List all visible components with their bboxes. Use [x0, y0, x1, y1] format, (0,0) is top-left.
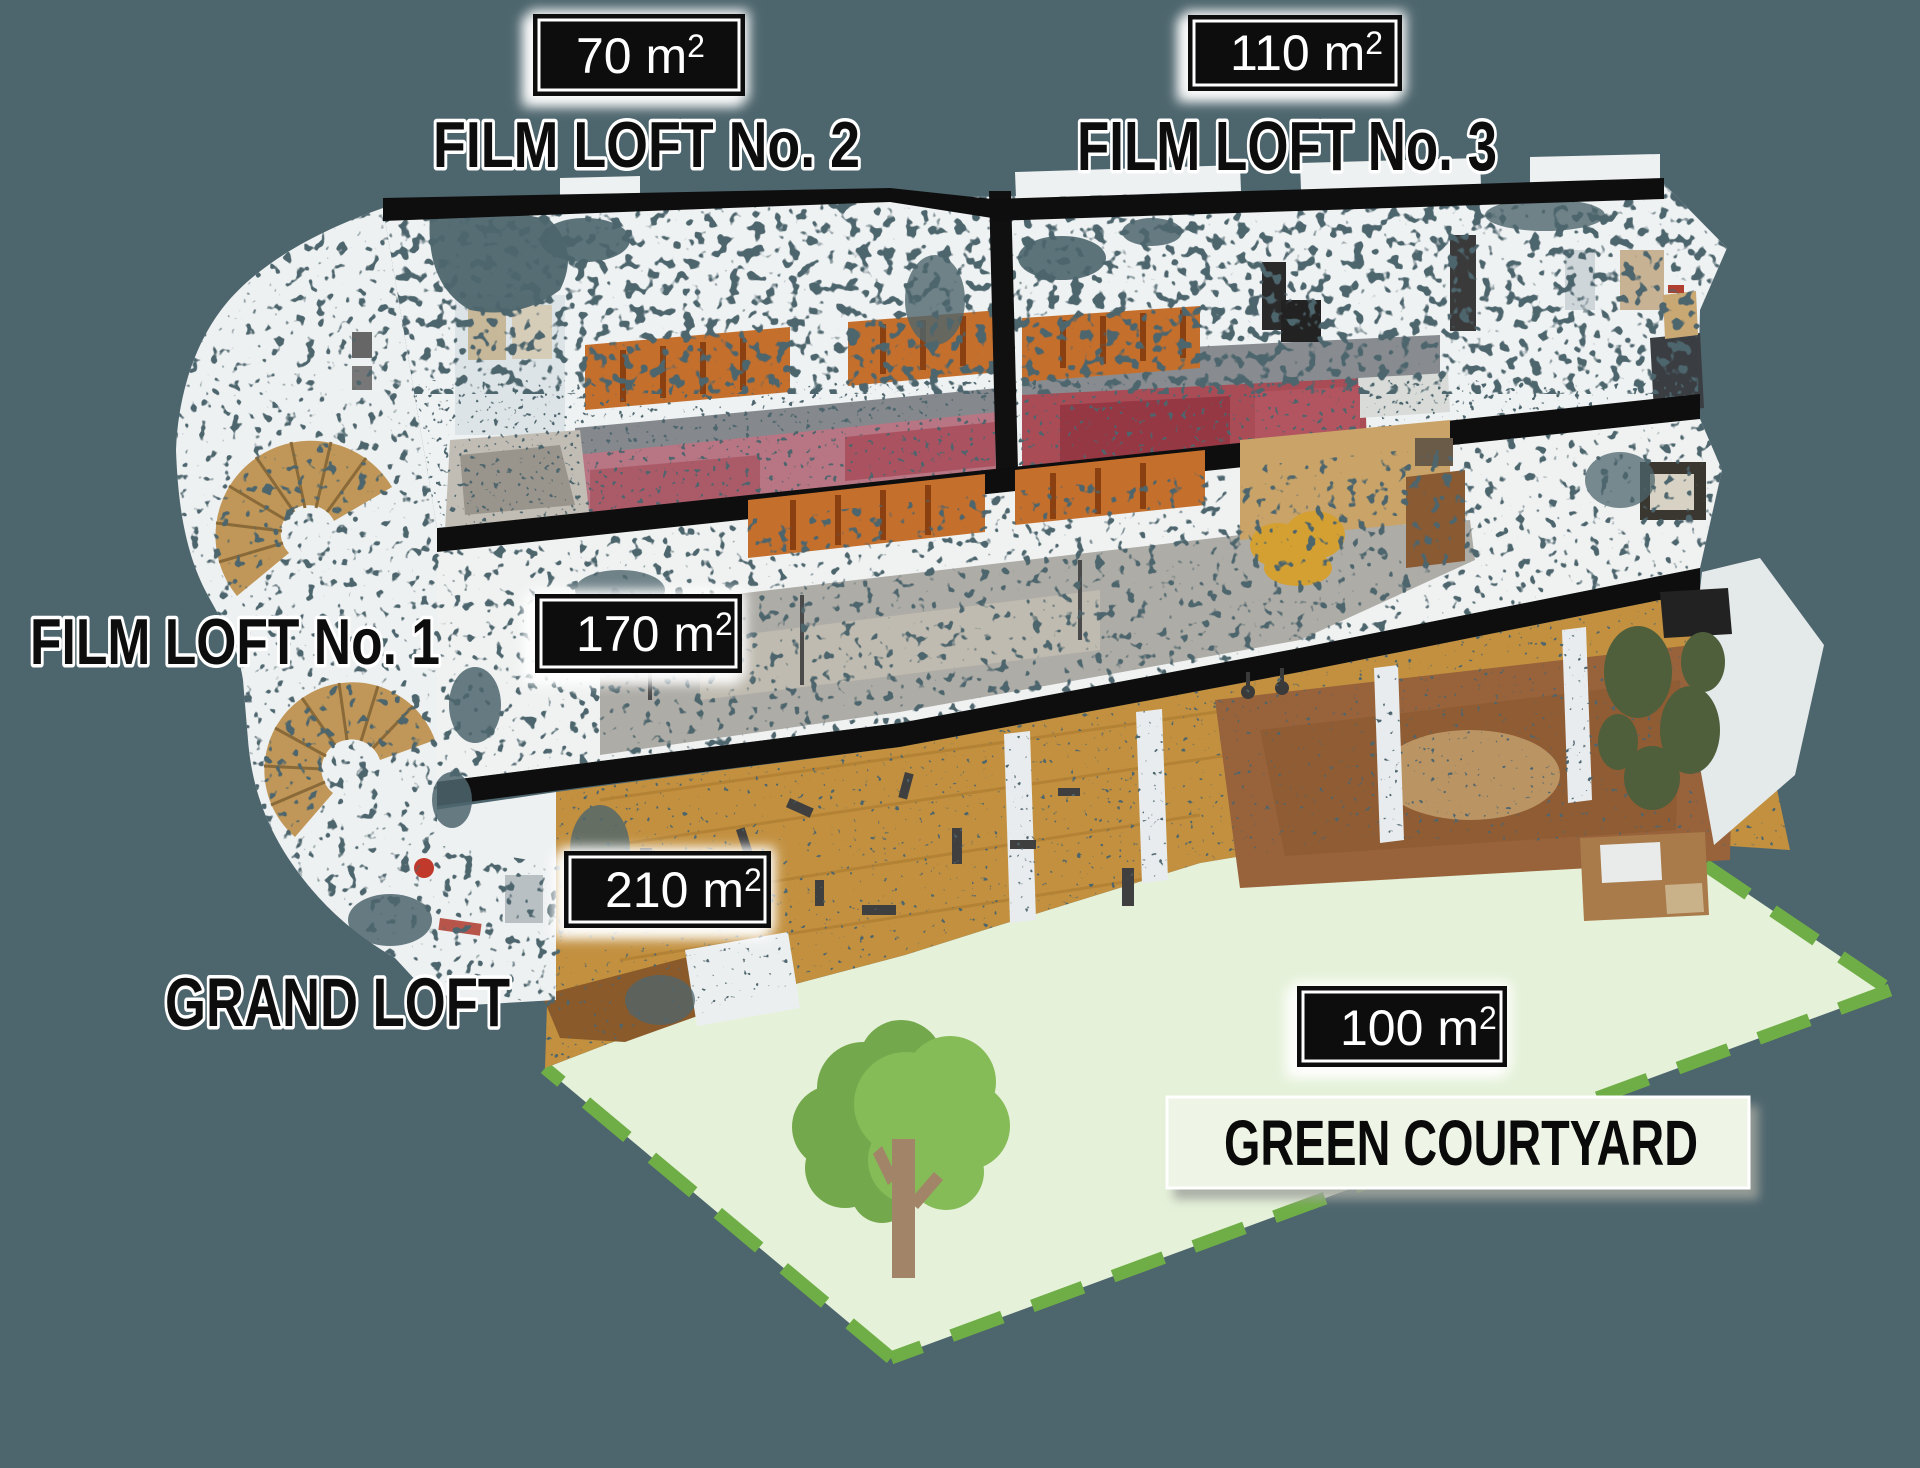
svg-text:FILM LOFT No. 1: FILM LOFT No. 1	[30, 605, 440, 678]
svg-text:GRAND LOFT: GRAND LOFT	[165, 964, 510, 1041]
svg-text:170 m2: 170 m2	[576, 606, 733, 662]
svg-text:100 m2: 100 m2	[1340, 1000, 1497, 1056]
svg-text:GREEN COURTYARD: GREEN COURTYARD	[1224, 1107, 1698, 1179]
svg-text:210 m2: 210 m2	[605, 862, 762, 918]
svg-text:FILM LOFT No. 3: FILM LOFT No. 3	[1077, 107, 1497, 185]
svg-text:FILM LOFT No. 2: FILM LOFT No. 2	[433, 108, 860, 181]
svg-text:70 m2: 70 m2	[576, 28, 705, 84]
svg-text:110 m2: 110 m2	[1230, 25, 1383, 81]
